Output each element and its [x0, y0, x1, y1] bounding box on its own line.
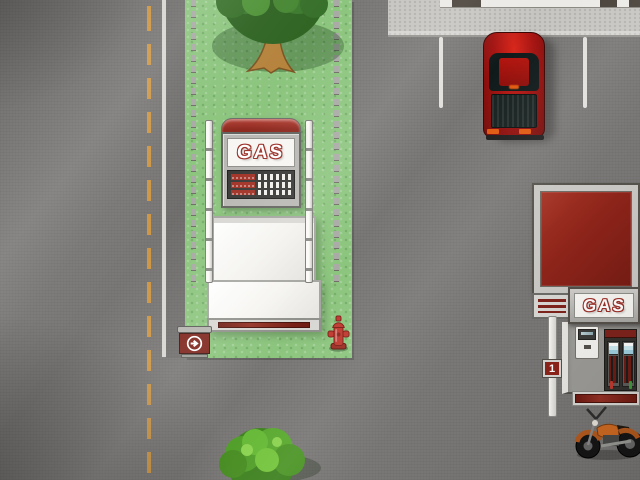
truck-taillight-right [519, 129, 531, 134]
lane-divider-line [147, 0, 151, 480]
bush [203, 426, 321, 480]
gas-label-panel: GAS [227, 138, 295, 167]
truck-brake-light [509, 85, 519, 89]
vending-machine[interactable] [575, 326, 599, 359]
store-roof [532, 183, 640, 295]
pump-body [624, 356, 633, 383]
truck-cab-roof [499, 58, 529, 86]
sign-pole-right [305, 120, 313, 283]
direction-sign-face [179, 333, 210, 354]
fuel-price-rows-icon [231, 174, 255, 195]
parking-line-right [583, 37, 587, 108]
green-nozzle-icon [629, 381, 632, 389]
right-arrow-icon [186, 335, 203, 352]
game-viewport: GAS [0, 0, 640, 480]
truck-taillight-left [487, 129, 499, 134]
pump-screen [609, 343, 618, 355]
curb-strip [166, 0, 186, 358]
red-nozzle-icon [610, 381, 613, 389]
sign-board: GAS [221, 118, 301, 208]
pump-screen [624, 343, 633, 355]
vending-display [578, 329, 596, 340]
fuel-pump-right[interactable] [622, 341, 635, 387]
direction-sign-base [181, 354, 208, 358]
direction-sign-cap [177, 326, 212, 333]
top-building-edge [440, 0, 640, 8]
vending-slot [584, 345, 591, 349]
red-pickup-truck[interactable] [483, 32, 557, 146]
tree [198, 0, 348, 78]
building-doormat [452, 0, 481, 7]
fuel-pump-left[interactable] [607, 341, 620, 387]
direction-sign[interactable] [177, 325, 212, 358]
storefront-gas-panel: GAS [574, 293, 634, 318]
parking-line-left [439, 37, 443, 108]
canopy-front-band [207, 318, 321, 332]
pump-body [609, 356, 618, 383]
sign-frame: GAS [221, 132, 301, 208]
pump-number-sign: 1 [543, 360, 561, 377]
fascia-stripes [538, 299, 566, 313]
fire-hydrant[interactable] [327, 314, 350, 352]
sign-pole-left [205, 120, 213, 283]
sign-arch-top [221, 118, 301, 132]
storefront-gas-label: GAS [582, 296, 626, 316]
building-doormat [629, 0, 640, 7]
roadside-gas-sign: GAS [204, 118, 314, 284]
canopy-base [207, 280, 321, 320]
gas-label: GAS [237, 142, 286, 164]
pump-bay-header [605, 330, 636, 338]
store-roof-panel [540, 191, 632, 287]
storefront-gas-sign: GAS [568, 287, 640, 324]
building-doormat [600, 0, 617, 7]
price-display [227, 170, 295, 199]
fuel-pump-bay [604, 329, 637, 391]
price-digit-grid-icon [258, 174, 291, 195]
orange-motorcycle[interactable] [573, 398, 640, 462]
truck-bed [491, 94, 537, 128]
gas-station-store: GAS 1 [532, 183, 640, 423]
fence-left [191, 0, 196, 288]
truck-body [483, 32, 545, 138]
canopy-red-stripe [218, 322, 310, 328]
truck-bumper [486, 135, 544, 140]
